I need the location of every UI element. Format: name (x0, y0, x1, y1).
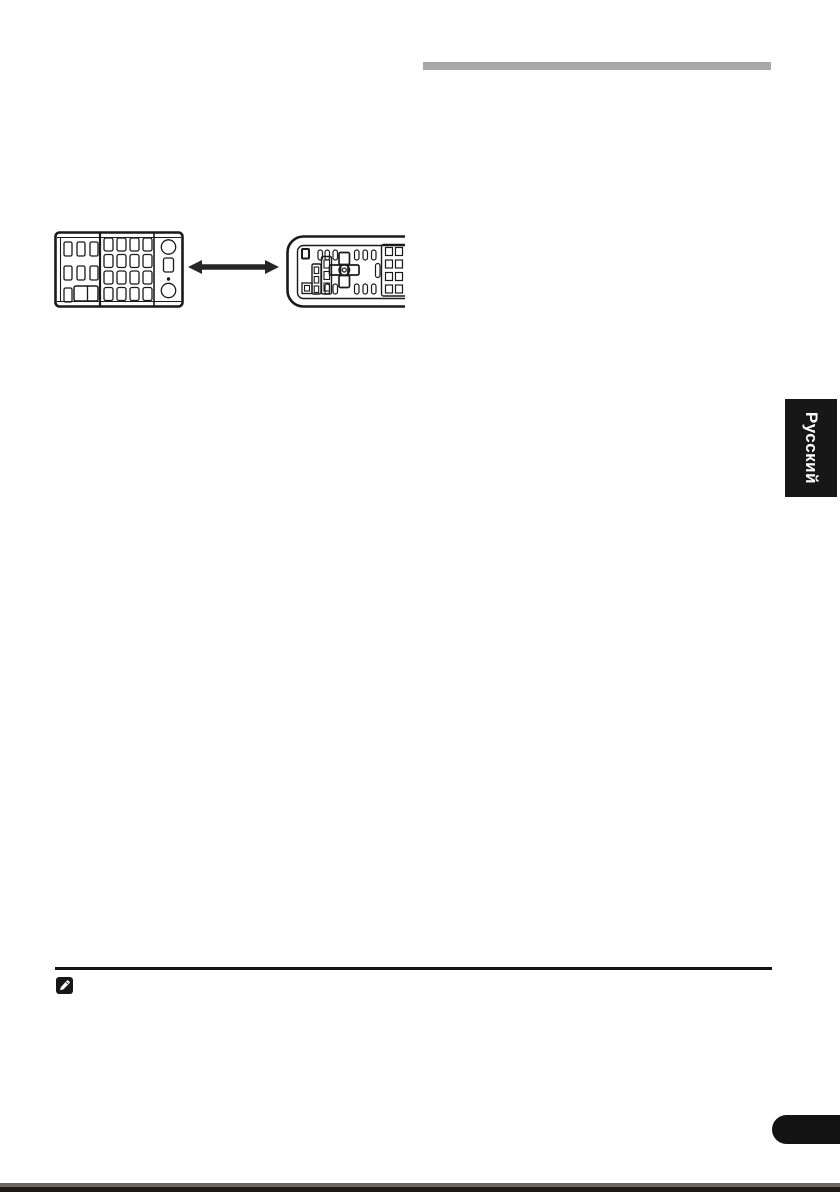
page-number-marker (772, 1115, 840, 1144)
note-divider-rule (55, 967, 772, 970)
language-tab-label: Русский (801, 412, 821, 484)
remote-flip-figure (0, 0, 840, 340)
remote-reverse-illustration (285, 227, 405, 309)
page-bottom-edge (0, 1187, 840, 1192)
pencil-note-icon (56, 977, 73, 994)
double-headed-arrow-icon (187, 259, 280, 275)
language-tab-russian: Русский (785, 399, 837, 497)
remote-front-illustration (54, 231, 184, 308)
manual-page: Русский (0, 0, 840, 1192)
